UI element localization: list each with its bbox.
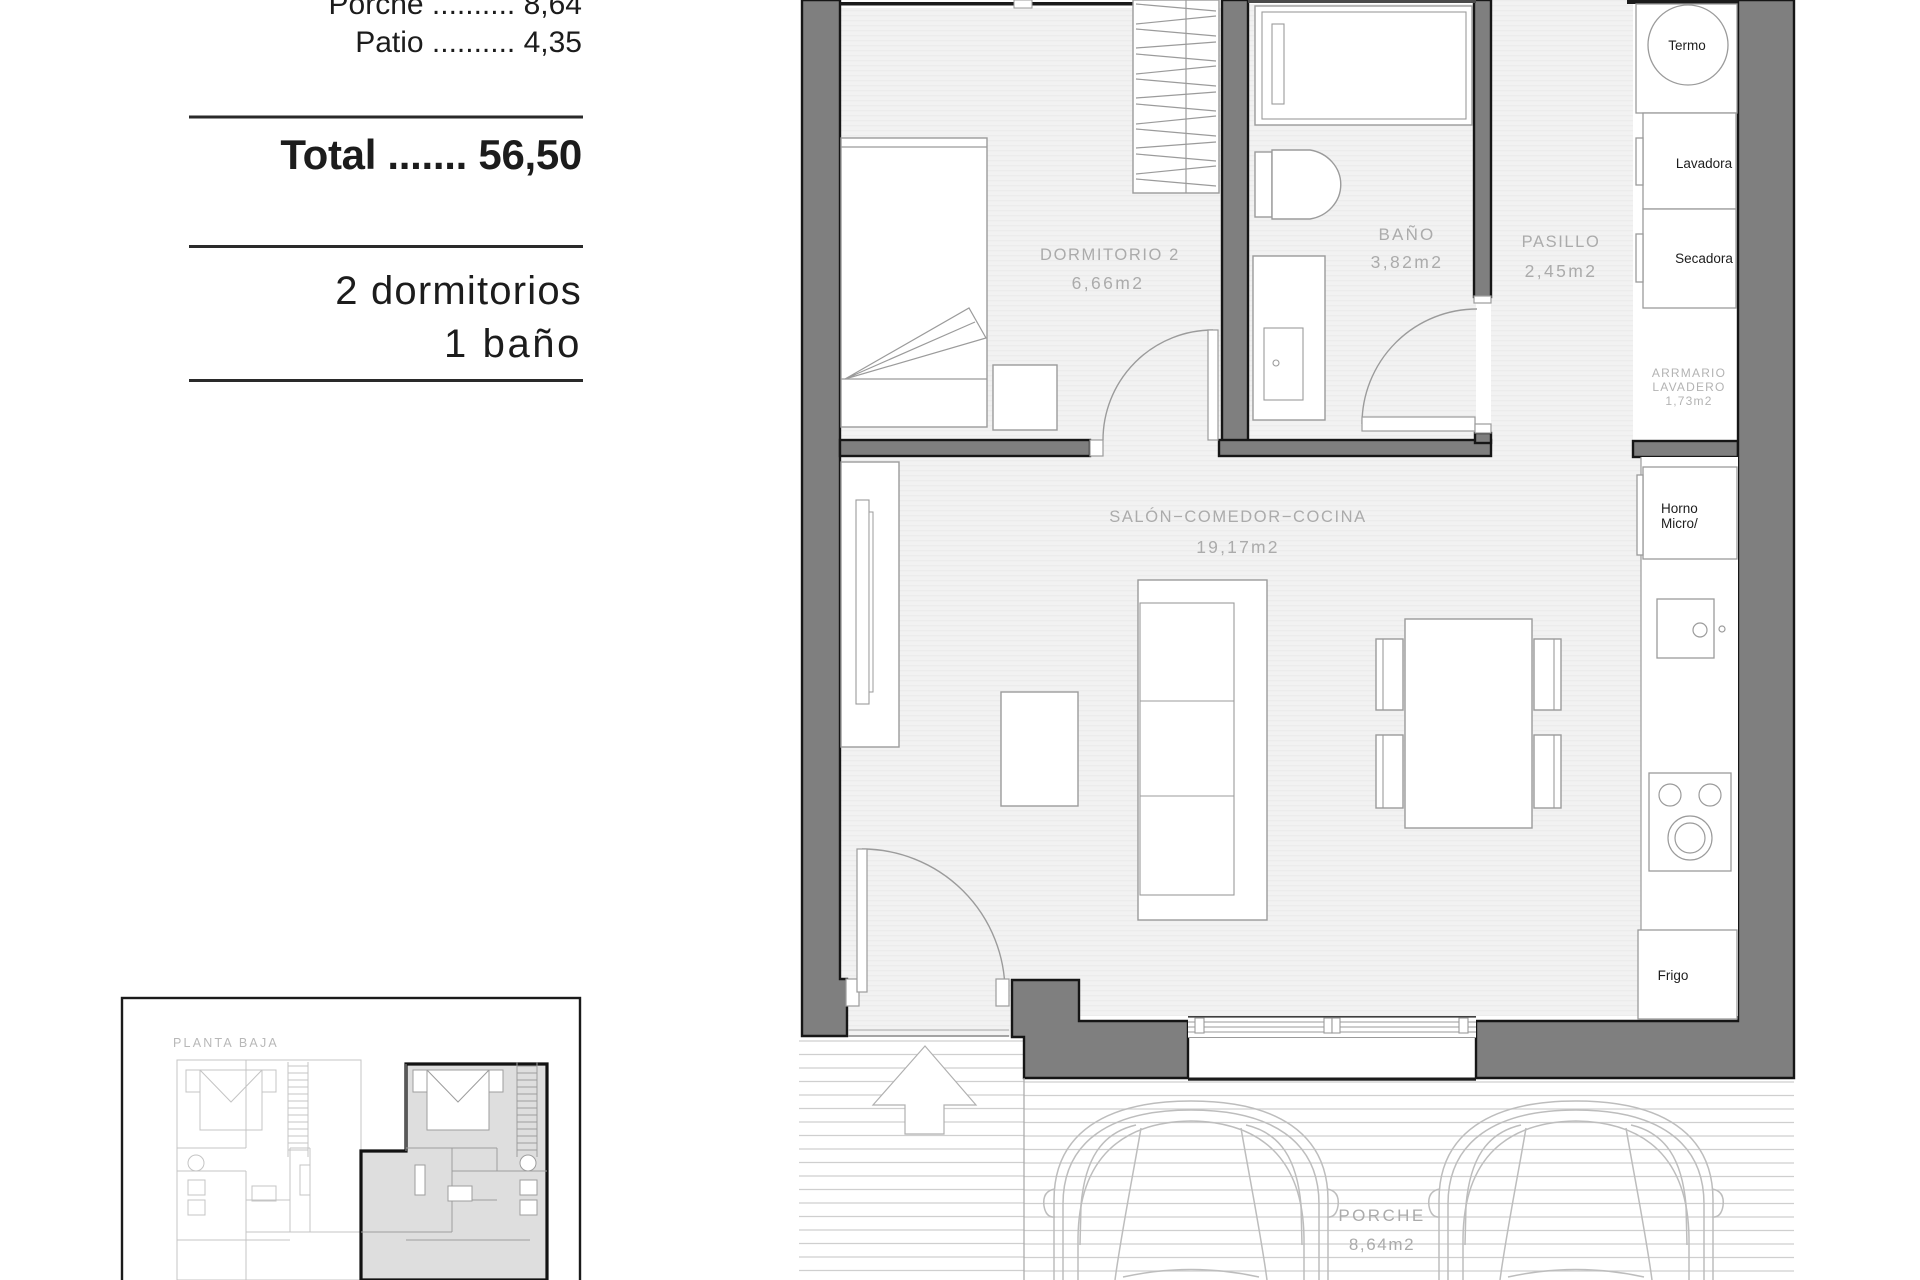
svg-text:PASILLO: PASILLO	[1522, 233, 1601, 251]
svg-text:DORMITORIO 2: DORMITORIO 2	[1040, 246, 1180, 264]
svg-text:2 dormitorios: 2 dormitorios	[335, 269, 582, 313]
svg-text:ARRMARIO: ARRMARIO	[1652, 366, 1726, 380]
svg-text:8,64m2: 8,64m2	[1349, 1235, 1415, 1254]
svg-text:Porche .......... 8,64: Porche .......... 8,64	[329, 0, 582, 21]
svg-text:SALÓN−COMEDOR−COCINA: SALÓN−COMEDOR−COCINA	[1109, 507, 1367, 526]
svg-text:19,17m2: 19,17m2	[1196, 537, 1280, 557]
svg-text:6,66m2: 6,66m2	[1072, 273, 1145, 293]
svg-text:1 baño: 1 baño	[444, 322, 582, 366]
svg-text:1,73m2: 1,73m2	[1665, 394, 1712, 408]
svg-text:PLANTA BAJA: PLANTA BAJA	[173, 1036, 279, 1050]
svg-text:LAVADERO: LAVADERO	[1652, 380, 1725, 394]
svg-text:Frigo: Frigo	[1658, 968, 1689, 983]
svg-text:Micro/: Micro/	[1661, 516, 1698, 531]
svg-text:Total ....... 56,50: Total ....... 56,50	[280, 131, 582, 178]
svg-text:Horno: Horno	[1661, 501, 1698, 516]
svg-text:Secadora: Secadora	[1675, 251, 1733, 266]
svg-text:3,82m2: 3,82m2	[1371, 252, 1444, 272]
svg-text:2,45m2: 2,45m2	[1525, 261, 1598, 281]
svg-text:Lavadora: Lavadora	[1676, 156, 1733, 171]
svg-text:Termo: Termo	[1668, 38, 1706, 53]
svg-text:PORCHE: PORCHE	[1338, 1206, 1425, 1225]
svg-text:Patio .......... 4,35: Patio .......... 4,35	[355, 26, 582, 59]
svg-text:BAÑO: BAÑO	[1379, 225, 1436, 244]
